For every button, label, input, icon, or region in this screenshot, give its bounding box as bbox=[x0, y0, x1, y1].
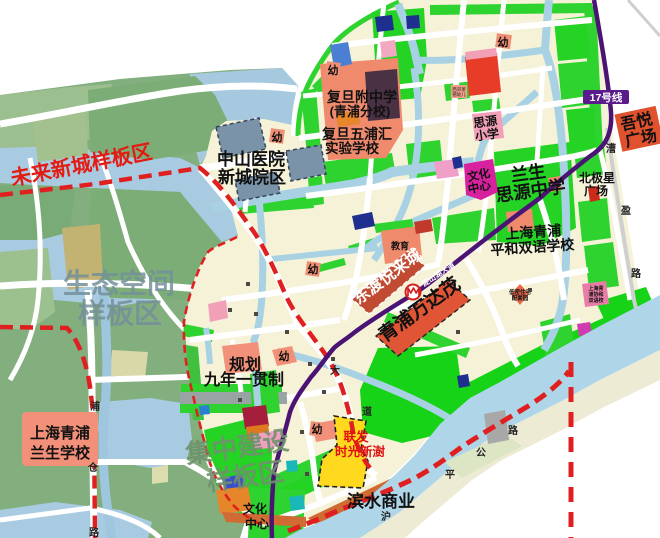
svg-text:中心: 中心 bbox=[245, 516, 269, 531]
svg-text:双语校: 双语校 bbox=[588, 297, 604, 304]
svg-text:德幼儿: 德幼儿 bbox=[452, 91, 466, 98]
svg-text:教育: 教育 bbox=[390, 240, 409, 251]
svg-text:新城院区: 新城院区 bbox=[218, 167, 286, 187]
svg-text:漕: 漕 bbox=[606, 142, 616, 155]
svg-text:路: 路 bbox=[89, 526, 100, 538]
svg-text:浦协和: 浦协和 bbox=[588, 291, 603, 298]
svg-text:平: 平 bbox=[445, 469, 455, 481]
svg-text:幼: 幼 bbox=[272, 130, 283, 144]
svg-text:复旦五浦汇: 复旦五浦汇 bbox=[321, 126, 392, 142]
svg-text:实验学校: 实验学校 bbox=[325, 140, 379, 156]
svg-text:北极星: 北极星 bbox=[579, 170, 615, 185]
svg-text:生态空间: 生态空间 bbox=[63, 267, 175, 299]
svg-text:沪: 沪 bbox=[381, 510, 391, 523]
svg-text:上海青浦: 上海青浦 bbox=[30, 424, 90, 442]
svg-text:大: 大 bbox=[330, 364, 340, 377]
svg-text:低密住宅: 低密住宅 bbox=[508, 288, 532, 296]
svg-text:滨水商业: 滨水商业 bbox=[347, 491, 415, 511]
svg-text:复旦附中学: 复旦附中学 bbox=[326, 89, 397, 105]
svg-text:样板区: 样板区 bbox=[78, 297, 162, 329]
svg-text:幼: 幼 bbox=[312, 422, 323, 436]
svg-text:路: 路 bbox=[631, 267, 642, 280]
svg-text:兰生学校: 兰生学校 bbox=[30, 444, 91, 462]
svg-text:路: 路 bbox=[508, 424, 519, 437]
svg-text:幼: 幼 bbox=[308, 262, 319, 276]
svg-text:幼: 幼 bbox=[498, 35, 509, 49]
svg-text:广场: 广场 bbox=[584, 183, 608, 198]
svg-text:公: 公 bbox=[476, 447, 486, 459]
svg-text:配套园: 配套园 bbox=[512, 294, 529, 302]
svg-text:盈: 盈 bbox=[620, 205, 631, 217]
svg-text:浦: 浦 bbox=[90, 400, 100, 413]
svg-text:幼: 幼 bbox=[279, 349, 290, 363]
svg-text:幼: 幼 bbox=[328, 63, 339, 77]
svg-text:九年一贯制: 九年一贯制 bbox=[203, 370, 284, 389]
svg-text:上海青: 上海青 bbox=[588, 285, 603, 292]
svg-text:文化: 文化 bbox=[243, 501, 267, 516]
svg-text:中山医院: 中山医院 bbox=[217, 149, 285, 169]
svg-text:时光新澍: 时光新澍 bbox=[335, 444, 386, 459]
svg-text:联发: 联发 bbox=[343, 429, 369, 444]
svg-text:道: 道 bbox=[362, 405, 372, 418]
svg-text:17号线: 17号线 bbox=[590, 91, 623, 104]
svg-text:(青浦分校): (青浦分校) bbox=[330, 104, 391, 119]
svg-text:仓: 仓 bbox=[87, 461, 99, 474]
